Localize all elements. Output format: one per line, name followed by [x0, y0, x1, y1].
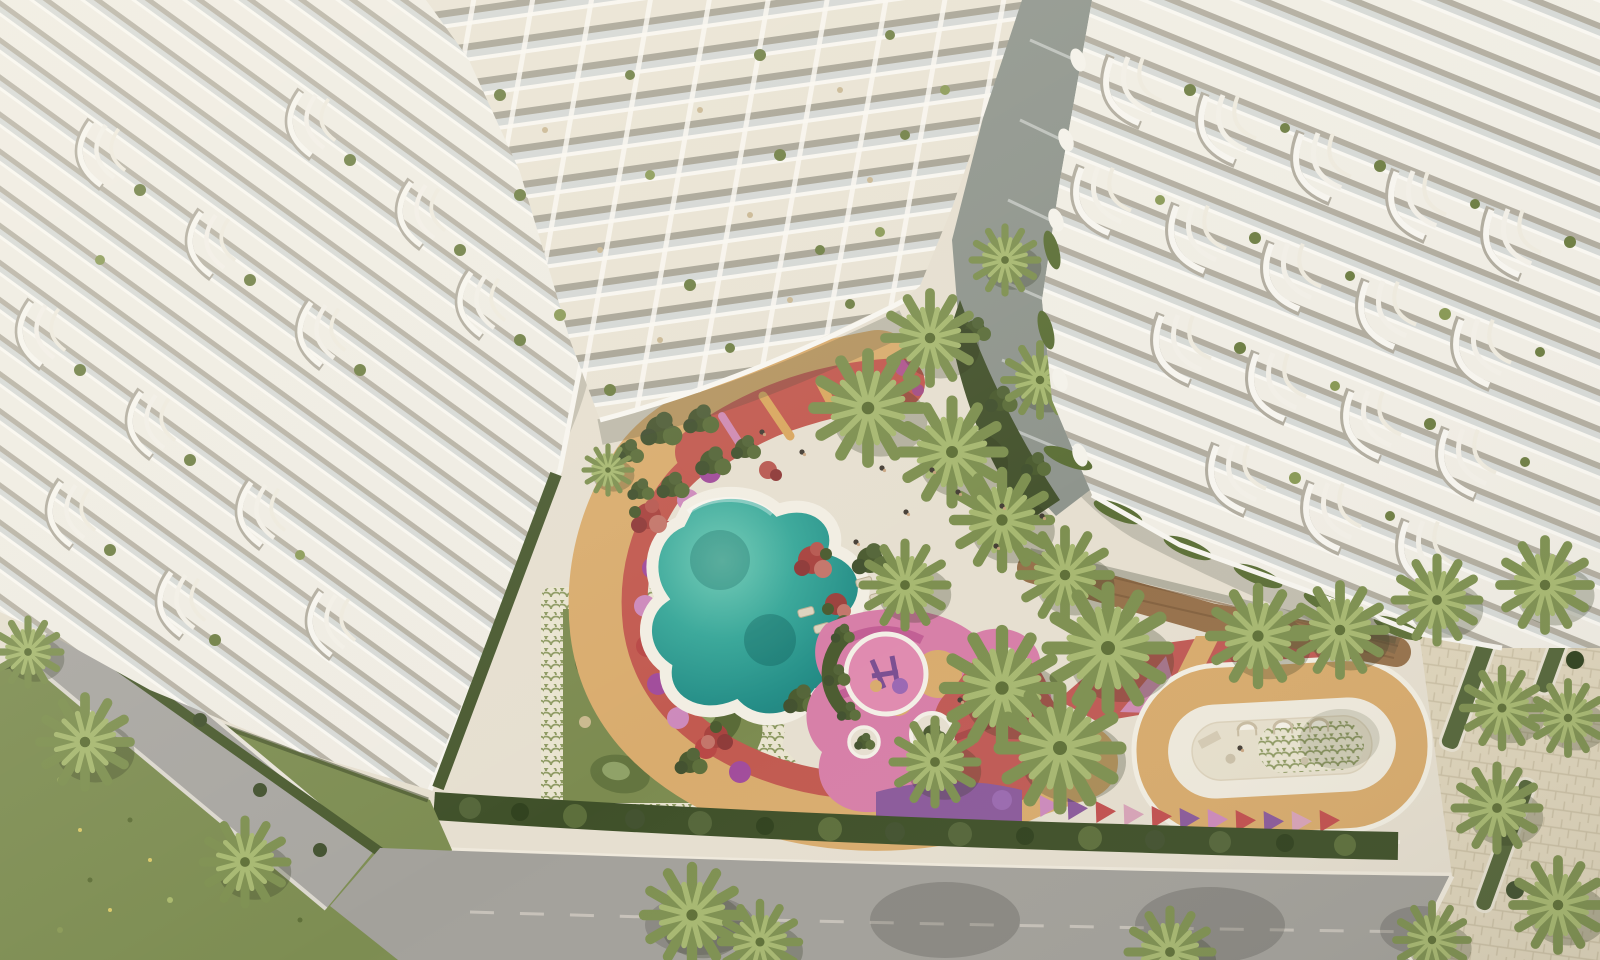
aerial-render — [0, 0, 1600, 960]
light-grade-overlay — [0, 0, 1600, 960]
aerial-render-stage — [0, 0, 1600, 960]
